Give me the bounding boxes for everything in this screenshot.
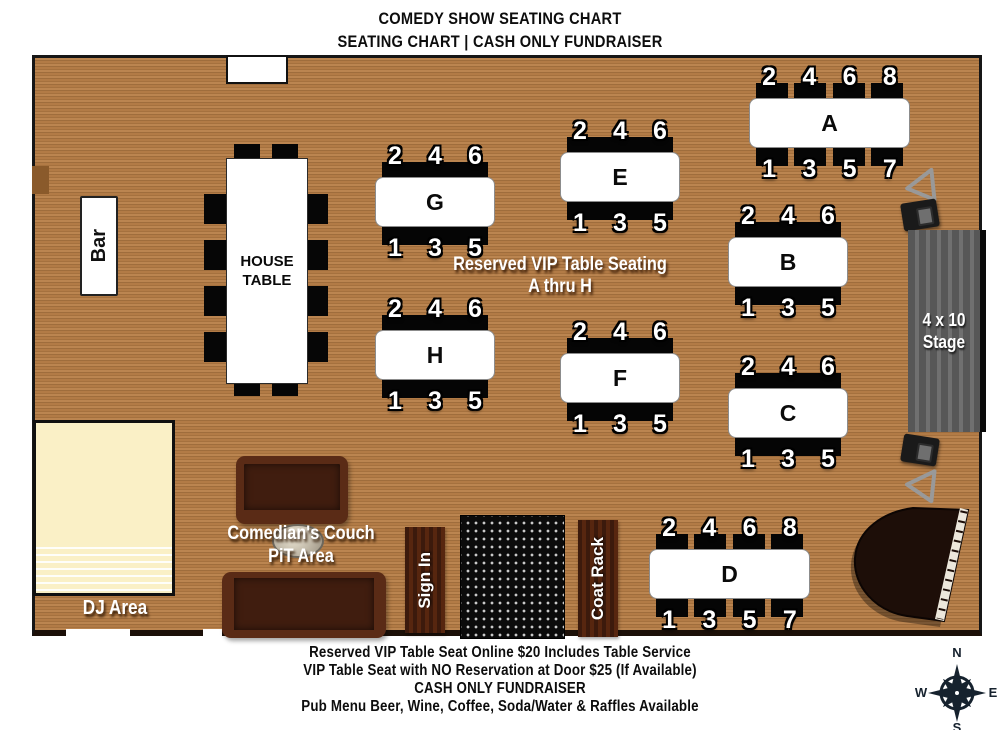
sign-in-station: Sign In — [405, 527, 445, 633]
house-table: HOUSE TABLE — [204, 144, 328, 396]
table-label: H — [375, 330, 495, 380]
stage-label-line1: 4 x 10 — [922, 309, 965, 331]
table-label: D — [649, 549, 810, 599]
top-entrance-door — [226, 55, 288, 84]
seat-number: 6 — [468, 297, 482, 322]
compass-rose-icon: N S W E — [915, 645, 999, 730]
seat-number: 6 — [821, 204, 835, 229]
seat-number: 6 — [743, 516, 757, 541]
seat-number: 1 — [662, 608, 676, 633]
seat-number: 1 — [388, 236, 402, 261]
seat-number: 5 — [468, 236, 482, 261]
seat-numbers-top: 2 4 6 8 — [749, 65, 910, 90]
seat-numbers-top: 2 4 6 — [728, 204, 848, 229]
seat-number: 2 — [388, 144, 402, 169]
table-H: 2 4 6 H 1 3 5 — [375, 300, 495, 418]
stage-label-line2: Stage — [922, 331, 965, 353]
seat-number: 1 — [573, 412, 587, 437]
seat-number: 6 — [653, 119, 667, 144]
table-label: C — [728, 388, 848, 438]
seat-number: 3 — [428, 389, 442, 414]
seat-number: 6 — [468, 144, 482, 169]
seat-number: 3 — [702, 608, 716, 633]
seat-numbers-top: 2 4 6 — [560, 320, 680, 345]
table-C: 2 4 6 C 1 3 5 — [728, 358, 848, 476]
seat-number: 4 — [613, 320, 627, 345]
seat-number: 6 — [821, 355, 835, 380]
footer-line-2: VIP Table Seat with NO Reservation at Do… — [79, 662, 922, 680]
table-E: 2 4 6 E 1 3 5 — [560, 122, 680, 240]
seat-number: 4 — [428, 144, 442, 169]
seat — [204, 194, 228, 224]
table-label: F — [560, 353, 680, 403]
left-wall-door — [32, 166, 49, 194]
couch — [222, 572, 386, 638]
stage-label: 4 x 10 Stage — [922, 309, 965, 353]
table-label: A — [749, 98, 910, 148]
seat-number: 2 — [741, 355, 755, 380]
coat-rack-label: Coat Rack — [588, 537, 608, 620]
footer-line-1: Reserved VIP Table Seat Online $20 Inclu… — [79, 644, 922, 662]
page-title: COMEDY SHOW SEATING CHART — [70, 9, 930, 29]
house-table-label-line2: TABLE — [243, 272, 292, 289]
seat — [204, 332, 228, 362]
bottom-wall-opening — [203, 629, 222, 638]
seat-numbers-bottom: 1 3 5 — [728, 296, 848, 321]
table-G: 2 4 6 G 1 3 5 — [375, 147, 495, 265]
house-table-label: HOUSE TABLE — [226, 158, 308, 384]
seat-number: 1 — [762, 157, 776, 182]
seat-number: 5 — [468, 389, 482, 414]
seat-number: 2 — [388, 297, 402, 322]
seat-number: 5 — [843, 157, 857, 182]
seat-number: 5 — [821, 447, 835, 472]
table-D: 2 4 6 8 D 1 3 5 7 — [649, 519, 810, 637]
footer-line-4: Pub Menu Beer, Wine, Coffee, Soda/Water … — [79, 698, 922, 716]
seat-number: 5 — [821, 296, 835, 321]
couch-pit-label: Comedian's Couch PiT Area — [224, 522, 377, 568]
seat — [204, 286, 228, 316]
dj-area — [33, 420, 175, 596]
seat-number: 1 — [741, 447, 755, 472]
sign-in-label: Sign In — [415, 552, 435, 609]
seat-number: 8 — [783, 516, 797, 541]
seat-number: 4 — [702, 516, 716, 541]
speaker-icon — [900, 198, 940, 231]
seat-number: 6 — [843, 65, 857, 90]
seat-number: 4 — [802, 65, 816, 90]
seat-number: 3 — [802, 157, 816, 182]
seat-numbers-top: 2 4 6 — [728, 355, 848, 380]
seat-number: 5 — [653, 412, 667, 437]
couch-pit-label-line2: PiT Area — [224, 545, 377, 568]
grand-piano-icon — [843, 498, 993, 630]
coat-rack: Coat Rack — [578, 520, 618, 637]
seat-number: 7 — [883, 157, 897, 182]
seat-number: 2 — [741, 204, 755, 229]
seat-numbers-bottom: 1 3 5 — [560, 211, 680, 236]
seat-number: 4 — [428, 297, 442, 322]
bar-area: Bar — [80, 196, 118, 296]
seat-number: 7 — [783, 608, 797, 633]
seat-number: 3 — [781, 447, 795, 472]
seat-numbers-top: 2 4 6 — [375, 144, 495, 169]
bottom-wall-opening — [66, 629, 130, 638]
seating-chart-page: COMEDY SHOW SEATING CHART SEATING CHART … — [0, 0, 1000, 730]
compass-e: E — [989, 685, 998, 700]
seat-number: 5 — [743, 608, 757, 633]
dj-area-stripes — [36, 547, 172, 593]
seat-numbers-bottom: 1 3 5 — [728, 447, 848, 472]
seat-number: 4 — [613, 119, 627, 144]
seat-number: 4 — [781, 204, 795, 229]
vip-note-line2: A thru H — [422, 276, 697, 298]
seat-number: 1 — [741, 296, 755, 321]
page-subtitle: SEATING CHART | CASH ONLY FUNDRAISER — [70, 32, 930, 52]
seat-number: 1 — [388, 389, 402, 414]
stage-area: 4 x 10 Stage — [908, 230, 986, 432]
seat-number: 2 — [762, 65, 776, 90]
house-table-label-line1: HOUSE — [240, 253, 293, 270]
seat-numbers-top: 2 4 6 — [375, 297, 495, 322]
seat-number: 4 — [781, 355, 795, 380]
seat-number: 2 — [573, 320, 587, 345]
seat-number: 2 — [662, 516, 676, 541]
speaker-icon — [900, 433, 940, 466]
couch — [236, 456, 348, 524]
seat-numbers-top: 2 4 6 8 — [649, 516, 810, 541]
seat-number: 5 — [653, 211, 667, 236]
compass-s: S — [953, 720, 962, 730]
footer-line-3: CASH ONLY FUNDRAISER — [79, 680, 922, 698]
table-B: 2 4 6 B 1 3 5 — [728, 207, 848, 325]
bar-label: Bar — [88, 229, 111, 262]
table-label: B — [728, 237, 848, 287]
table-label: E — [560, 152, 680, 202]
table-A: 2 4 6 8 A 1 3 5 7 — [749, 68, 910, 186]
seat-number: 3 — [428, 236, 442, 261]
seat-number: 2 — [573, 119, 587, 144]
table-label: G — [375, 177, 495, 227]
dance-floor — [460, 515, 565, 639]
seat-numbers-bottom: 1 3 5 — [375, 389, 495, 414]
seat-numbers-top: 2 4 6 — [560, 119, 680, 144]
seat-numbers-bottom: 1 3 5 — [560, 412, 680, 437]
dj-area-label: DJ Area — [51, 597, 180, 620]
seat — [204, 240, 228, 270]
seat-number: 6 — [653, 320, 667, 345]
seat-numbers-bottom: 1 3 5 7 — [749, 157, 910, 182]
couch-pit-label-line1: Comedian's Couch — [224, 522, 377, 545]
seat-number: 3 — [613, 211, 627, 236]
compass-n: N — [952, 645, 961, 660]
seat-number: 3 — [613, 412, 627, 437]
table-F: 2 4 6 F 1 3 5 — [560, 323, 680, 441]
seat-number: 3 — [781, 296, 795, 321]
seat-numbers-bottom: 1 3 5 — [375, 236, 495, 261]
seat-numbers-bottom: 1 3 5 7 — [649, 608, 810, 633]
seat-number: 1 — [573, 211, 587, 236]
seat-number: 8 — [883, 65, 897, 90]
